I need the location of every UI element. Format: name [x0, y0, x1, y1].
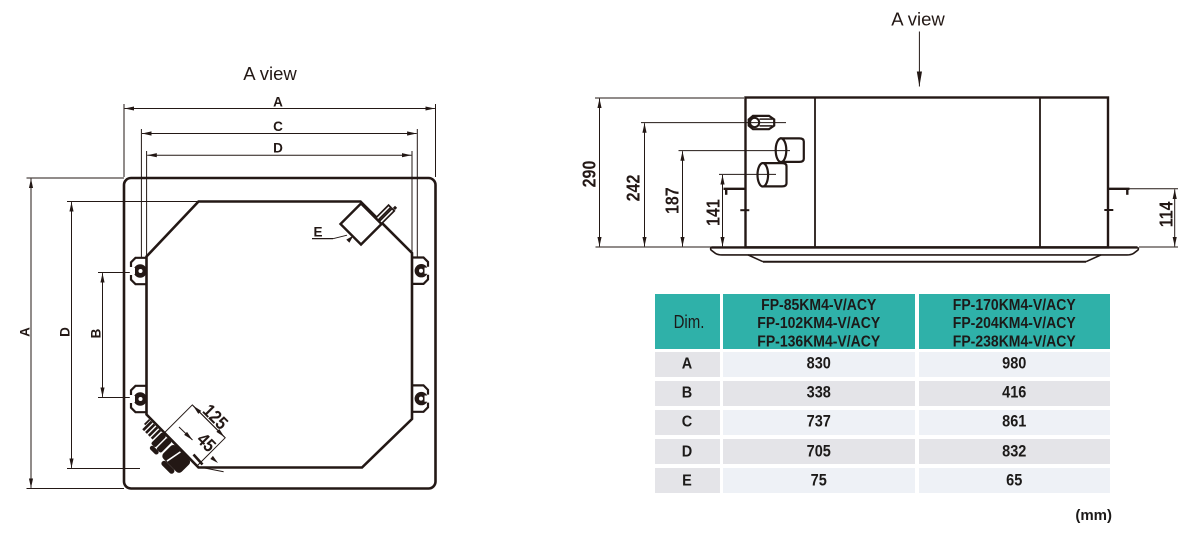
svg-text:E: E	[314, 224, 323, 239]
svg-text:C: C	[273, 119, 283, 134]
svg-text:A: A	[273, 95, 283, 110]
svg-text:187: 187	[662, 187, 683, 214]
svg-text:D: D	[58, 327, 73, 337]
svg-text:A view: A view	[243, 63, 297, 84]
svg-text:B: B	[89, 328, 104, 338]
svg-text:125: 125	[199, 400, 233, 434]
svg-text:D: D	[273, 141, 283, 156]
svg-text:242: 242	[622, 175, 643, 202]
svg-text:290: 290	[578, 161, 599, 188]
svg-text:A: A	[18, 327, 33, 337]
svg-text:114: 114	[1156, 201, 1177, 227]
svg-text:A view: A view	[891, 9, 945, 30]
svg-text:141: 141	[703, 199, 724, 226]
